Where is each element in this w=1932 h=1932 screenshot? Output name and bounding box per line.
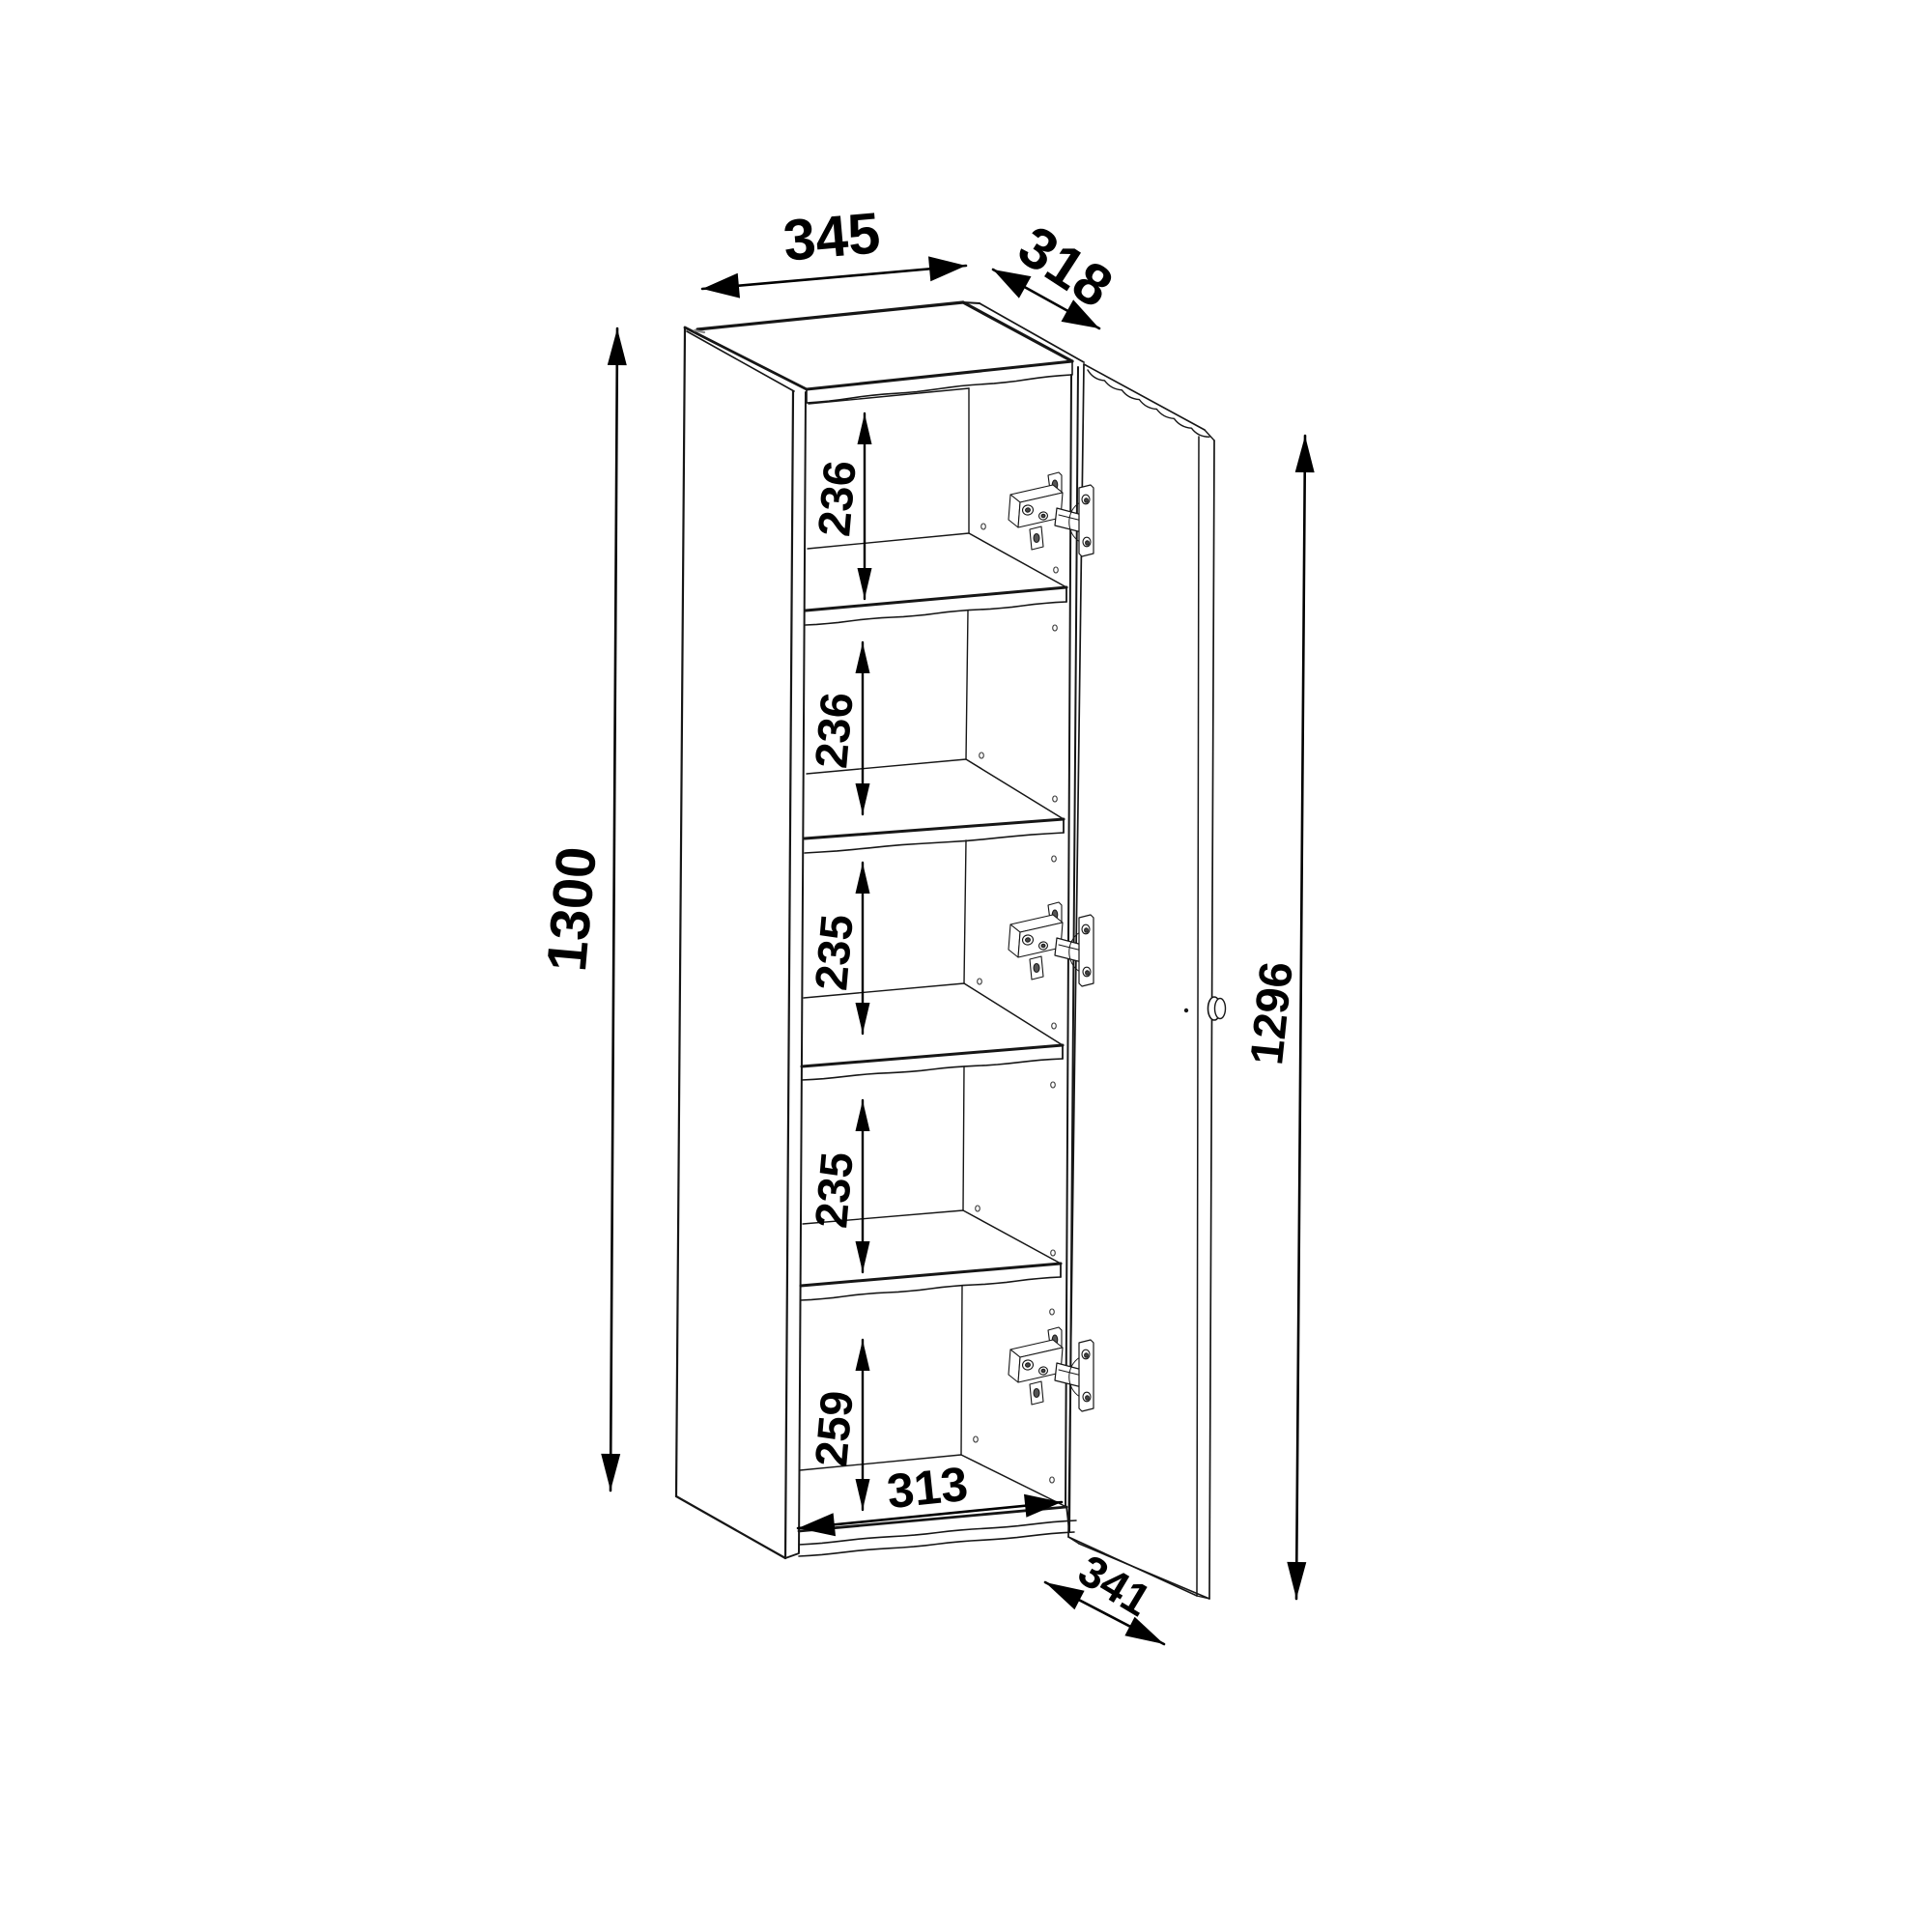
svg-text:235: 235 (805, 1151, 863, 1231)
svg-text:235: 235 (805, 913, 863, 993)
svg-text:313: 313 (885, 1457, 971, 1519)
svg-text:259: 259 (805, 1389, 863, 1469)
svg-text:236: 236 (808, 459, 866, 539)
svg-text:236: 236 (805, 691, 863, 771)
svg-text:345: 345 (781, 200, 883, 272)
svg-text:1296: 1296 (1241, 959, 1303, 1067)
svg-text:1300: 1300 (535, 844, 609, 974)
